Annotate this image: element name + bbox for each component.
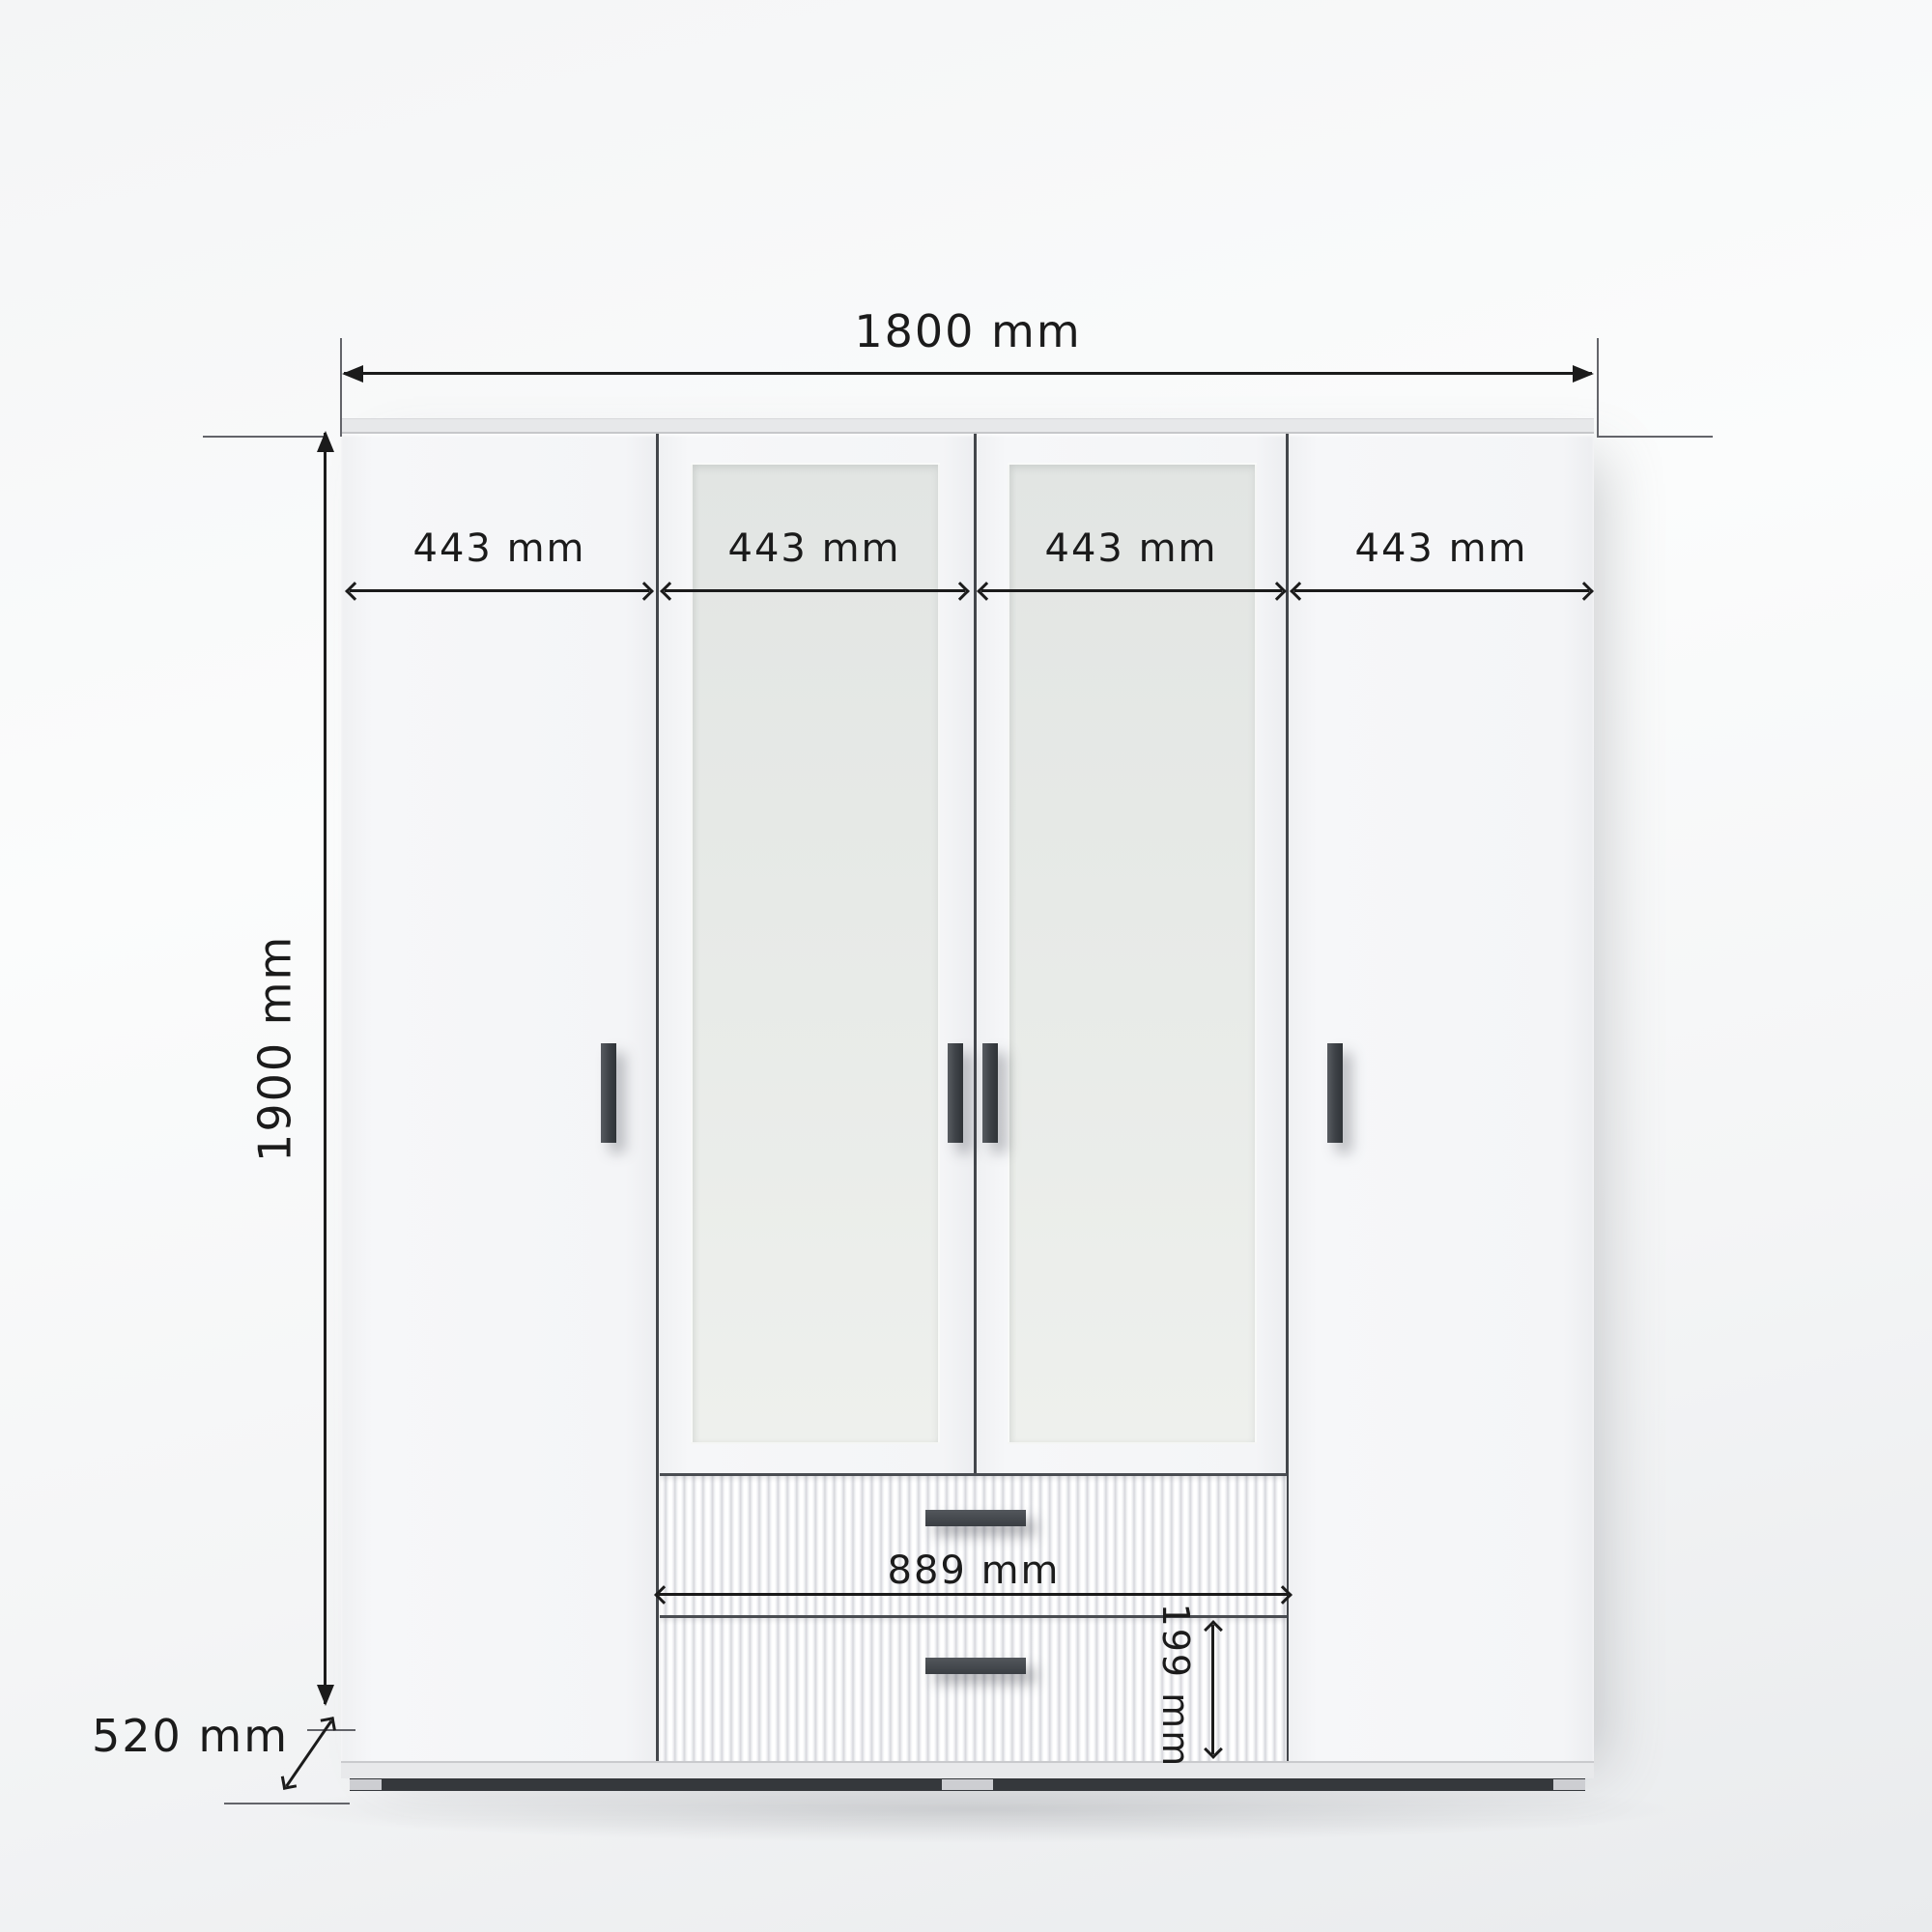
door-handle-4 [1327,1043,1343,1143]
door-gap-1-2 [656,434,659,1763]
door-gap-2-3 [974,434,977,1491]
mirror-right [1008,463,1257,1444]
door-handle-1 [601,1043,616,1143]
drawer-handle-1 [925,1510,1026,1526]
drawer-height-line [1211,1625,1214,1754]
width-dimension-line [344,372,1592,375]
wardrobe-top-panel [341,418,1594,434]
wardrobe-dimension-diagram: 1800 mm 1900 mm 443 mm 443 mm 443 mm 443… [0,0,1932,1932]
door3-width-line [981,589,1282,592]
door1-width-label: 443 mm [393,527,606,570]
arrowhead-up-icon [317,431,334,452]
arrowhead-down-icon [317,1685,334,1706]
mirror-left [691,463,940,1444]
plinth [341,1761,1594,1778]
arrowhead-right-icon [281,1775,297,1790]
width-dimension-label: 1800 mm [775,307,1161,356]
drawer-handle-2 [925,1658,1026,1674]
door4-width-line [1294,589,1589,592]
door1-width-line [350,589,649,592]
door-handle-3 [982,1043,998,1143]
arrowhead-left-icon [342,365,363,383]
foot-left [350,1779,382,1790]
foot-right [1553,1779,1585,1790]
witness-depth-lower [224,1803,350,1804]
door4-width-label: 443 mm [1335,527,1548,570]
door2-width-label: 443 mm [708,527,921,570]
drawer-height-label: 199 mm [1154,1560,1195,1811]
witness-width-left [340,338,342,437]
witness-corner-right [1597,436,1713,438]
height-dimension-label: 1900 mm [251,855,300,1241]
door2-width-line [665,589,965,592]
door-handle-2 [948,1043,963,1143]
arrowhead-right-icon [1573,365,1594,383]
height-dimension-line [324,433,327,1704]
drawer-width-label: 889 mm [829,1549,1119,1592]
witness-width-right [1597,338,1599,438]
door3-width-label: 443 mm [1025,527,1237,570]
foot-center [942,1779,993,1790]
depth-dimension-label: 520 mm [45,1712,335,1761]
witness-height-top [203,436,327,438]
